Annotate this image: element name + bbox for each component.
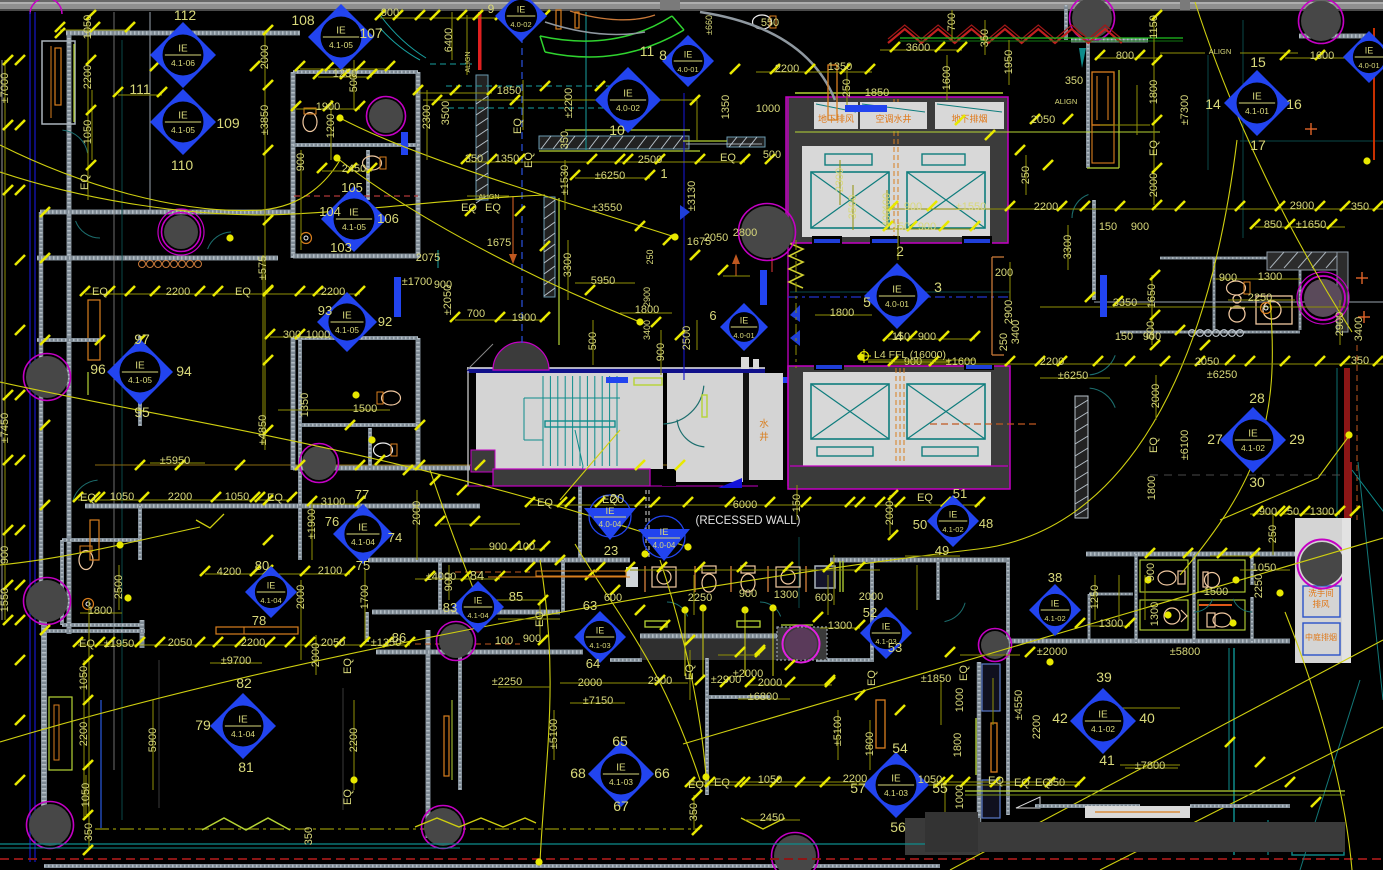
svg-text:96: 96 bbox=[90, 361, 106, 377]
svg-text:2200: 2200 bbox=[843, 773, 867, 785]
svg-text:77: 77 bbox=[355, 487, 369, 502]
svg-text:2800: 2800 bbox=[733, 227, 757, 239]
svg-text:4200: 4200 bbox=[217, 566, 241, 578]
svg-text:2000: 2000 bbox=[310, 643, 322, 667]
svg-text:IE: IE bbox=[342, 311, 352, 322]
svg-text:2050: 2050 bbox=[168, 637, 192, 649]
svg-text:56: 56 bbox=[890, 819, 906, 835]
svg-text:±7150: ±7150 bbox=[583, 695, 614, 707]
svg-text:4.1-04: 4.1-04 bbox=[231, 729, 255, 739]
svg-text:350: 350 bbox=[83, 823, 95, 841]
svg-text:1600: 1600 bbox=[1310, 50, 1334, 62]
svg-text:2050: 2050 bbox=[1031, 114, 1055, 126]
svg-text:洗手间: 洗手间 bbox=[1308, 588, 1334, 598]
svg-text:EQ: EQ bbox=[1014, 777, 1030, 789]
svg-text:2250: 2250 bbox=[1253, 574, 1265, 598]
svg-text:1350: 1350 bbox=[828, 61, 852, 73]
svg-text:1050: 1050 bbox=[82, 120, 94, 144]
svg-text:350: 350 bbox=[1047, 777, 1065, 789]
svg-text:900: 900 bbox=[489, 541, 507, 553]
svg-text:1300: 1300 bbox=[1258, 271, 1282, 283]
svg-text:94: 94 bbox=[176, 363, 192, 379]
svg-text:38: 38 bbox=[1048, 570, 1062, 585]
svg-text:15: 15 bbox=[1250, 54, 1266, 70]
svg-text:EQ: EQ bbox=[267, 492, 283, 504]
svg-text:4.1-02: 4.1-02 bbox=[942, 525, 963, 534]
svg-text:(RECESSED WALL): (RECESSED WALL) bbox=[695, 515, 800, 527]
svg-text:250: 250 bbox=[841, 79, 853, 97]
svg-text:1050: 1050 bbox=[82, 15, 94, 39]
svg-text:80: 80 bbox=[255, 558, 269, 573]
svg-text:4.1-03: 4.1-03 bbox=[884, 788, 908, 798]
svg-text:5950: 5950 bbox=[591, 275, 615, 287]
svg-text:39: 39 bbox=[1096, 669, 1112, 685]
svg-text:500: 500 bbox=[763, 149, 781, 161]
svg-text:64: 64 bbox=[586, 656, 600, 671]
svg-text:350: 350 bbox=[1065, 75, 1083, 87]
svg-text:2450: 2450 bbox=[342, 163, 366, 175]
svg-text:95: 95 bbox=[134, 404, 150, 420]
svg-text:1900: 1900 bbox=[316, 101, 340, 113]
svg-text:IE: IE bbox=[474, 596, 483, 606]
svg-text:EQ: EQ bbox=[534, 611, 546, 627]
svg-text:2900: 2900 bbox=[1334, 312, 1346, 336]
svg-text:EQ: EQ bbox=[485, 202, 501, 214]
svg-text:20: 20 bbox=[610, 491, 624, 506]
svg-text:550: 550 bbox=[761, 17, 779, 29]
svg-text:6400: 6400 bbox=[443, 28, 455, 52]
svg-text:2100: 2100 bbox=[318, 565, 342, 577]
svg-text:ALIGN: ALIGN bbox=[1055, 97, 1078, 106]
svg-text:EQ: EQ bbox=[79, 174, 91, 190]
svg-text:2050: 2050 bbox=[321, 637, 345, 649]
svg-text:1500: 1500 bbox=[353, 403, 377, 415]
svg-text:IE: IE bbox=[606, 506, 615, 517]
svg-text:1300: 1300 bbox=[774, 589, 798, 601]
svg-text:11: 11 bbox=[640, 43, 655, 59]
svg-text:±2050: ±2050 bbox=[442, 285, 454, 316]
svg-text:2200: 2200 bbox=[1034, 201, 1058, 213]
svg-text:850: 850 bbox=[1264, 219, 1282, 231]
svg-text:29: 29 bbox=[1289, 431, 1305, 447]
svg-text:16: 16 bbox=[1286, 96, 1302, 112]
svg-text:9: 9 bbox=[488, 2, 495, 16]
svg-text:900: 900 bbox=[523, 633, 541, 645]
svg-text:900: 900 bbox=[1259, 506, 1277, 518]
svg-text:IE: IE bbox=[1098, 710, 1108, 721]
svg-text:350: 350 bbox=[303, 827, 315, 845]
svg-text:50: 50 bbox=[1287, 506, 1299, 518]
svg-text:IE: IE bbox=[684, 50, 693, 60]
svg-text:700: 700 bbox=[946, 13, 958, 31]
svg-text:900: 900 bbox=[918, 221, 936, 233]
svg-text:IE: IE bbox=[517, 5, 526, 15]
svg-text:68: 68 bbox=[570, 765, 586, 781]
svg-text:2500: 2500 bbox=[681, 326, 693, 350]
svg-text:IE: IE bbox=[178, 44, 188, 55]
svg-text:250: 250 bbox=[998, 333, 1010, 351]
svg-text:IE: IE bbox=[267, 581, 276, 591]
svg-text:1150: 1150 bbox=[1148, 15, 1160, 39]
svg-text:排风: 排风 bbox=[1312, 599, 1330, 609]
svg-text:5900: 5900 bbox=[147, 728, 159, 752]
svg-text:600: 600 bbox=[815, 592, 833, 604]
svg-text:8: 8 bbox=[659, 47, 667, 63]
svg-text:93: 93 bbox=[318, 303, 332, 318]
svg-text:地下排风: 地下排风 bbox=[818, 113, 854, 124]
svg-text:±2200: ±2200 bbox=[563, 88, 575, 119]
svg-text:1000: 1000 bbox=[954, 785, 966, 809]
svg-text:74: 74 bbox=[388, 530, 402, 545]
svg-text:50: 50 bbox=[913, 517, 927, 532]
svg-text:4.1-04: 4.1-04 bbox=[260, 596, 281, 605]
svg-text:IE: IE bbox=[740, 316, 749, 326]
svg-text:±5800: ±5800 bbox=[1170, 646, 1201, 658]
svg-text:109: 109 bbox=[216, 115, 240, 131]
svg-text:中庭排烟: 中庭排烟 bbox=[1305, 632, 1337, 642]
svg-text:1800: 1800 bbox=[1146, 476, 1158, 500]
svg-text:27: 27 bbox=[1207, 431, 1223, 447]
svg-text:1300: 1300 bbox=[828, 620, 852, 632]
svg-text:EQ: EQ bbox=[80, 492, 96, 504]
svg-text:IE: IE bbox=[1051, 599, 1060, 609]
svg-text:EQ: EQ bbox=[988, 775, 1004, 787]
svg-text:5: 5 bbox=[863, 294, 871, 310]
svg-text:4.0-02: 4.0-02 bbox=[616, 103, 640, 113]
svg-text:900: 900 bbox=[655, 343, 667, 361]
svg-text:4.0-01: 4.0-01 bbox=[885, 299, 909, 309]
svg-text:2000: 2000 bbox=[295, 585, 307, 609]
svg-text:4.0-01: 4.0-01 bbox=[1358, 61, 1379, 70]
svg-text:10: 10 bbox=[609, 122, 625, 138]
svg-text:105: 105 bbox=[341, 180, 363, 195]
svg-text:2000: 2000 bbox=[1148, 173, 1160, 197]
svg-text:1050: 1050 bbox=[225, 491, 249, 503]
svg-text:500: 500 bbox=[348, 74, 360, 92]
svg-text:2000: 2000 bbox=[1150, 384, 1162, 408]
svg-text:1000: 1000 bbox=[306, 329, 330, 341]
svg-text:ALIGN: ALIGN bbox=[1209, 47, 1232, 56]
svg-text:±1530: ±1530 bbox=[559, 165, 571, 196]
svg-text:92: 92 bbox=[378, 314, 392, 329]
svg-text:4: 4 bbox=[895, 328, 903, 344]
svg-text:1650: 1650 bbox=[1146, 284, 1158, 308]
svg-text:76: 76 bbox=[325, 514, 339, 529]
svg-text:100: 100 bbox=[517, 541, 535, 553]
svg-text:2200: 2200 bbox=[1031, 715, 1043, 739]
svg-text:EQ: EQ bbox=[714, 777, 730, 789]
svg-text:106: 106 bbox=[377, 211, 399, 226]
svg-text:±7300: ±7300 bbox=[1179, 95, 1191, 126]
svg-text:17: 17 bbox=[1250, 137, 1266, 153]
svg-text:400: 400 bbox=[881, 193, 893, 211]
svg-text:111: 111 bbox=[129, 81, 150, 97]
svg-text:2000: 2000 bbox=[259, 45, 271, 69]
svg-text:4.1-05: 4.1-05 bbox=[329, 40, 353, 50]
svg-text:1850: 1850 bbox=[497, 85, 521, 97]
svg-text:23: 23 bbox=[604, 543, 618, 558]
svg-text:±4850: ±4850 bbox=[257, 415, 269, 446]
svg-text:110: 110 bbox=[171, 157, 194, 173]
svg-text:L4 FFL (16000): L4 FFL (16000) bbox=[874, 349, 946, 361]
svg-text:150: 150 bbox=[791, 494, 803, 512]
svg-text:900: 900 bbox=[1219, 272, 1237, 284]
svg-text:14: 14 bbox=[1205, 96, 1221, 112]
svg-text:水: 水 bbox=[759, 418, 769, 430]
svg-text:IE: IE bbox=[336, 26, 346, 37]
svg-text:±5100: ±5100 bbox=[832, 716, 844, 747]
svg-text:IE: IE bbox=[358, 523, 368, 534]
svg-text:±2000: ±2000 bbox=[733, 668, 764, 680]
svg-text:2200: 2200 bbox=[348, 728, 360, 752]
svg-text:42: 42 bbox=[1052, 710, 1068, 726]
svg-text:2200: 2200 bbox=[775, 63, 799, 75]
svg-text:900: 900 bbox=[1145, 563, 1157, 581]
svg-text:6000: 6000 bbox=[733, 499, 757, 511]
svg-text:82: 82 bbox=[236, 675, 252, 691]
svg-text:6: 6 bbox=[709, 308, 716, 323]
svg-text:107: 107 bbox=[359, 25, 383, 41]
svg-text:IE: IE bbox=[178, 111, 188, 122]
svg-text:2900: 2900 bbox=[648, 675, 672, 687]
svg-text:1: 1 bbox=[660, 166, 667, 181]
svg-text:2000: 2000 bbox=[411, 501, 423, 525]
svg-text:IE: IE bbox=[1252, 92, 1262, 103]
svg-text:250: 250 bbox=[1020, 166, 1032, 184]
svg-text:±6800: ±6800 bbox=[748, 691, 779, 703]
svg-text:EQ: EQ bbox=[461, 202, 477, 214]
svg-text:2050: 2050 bbox=[1195, 356, 1219, 368]
svg-text:2: 2 bbox=[896, 243, 904, 259]
svg-text:2000: 2000 bbox=[859, 591, 883, 603]
svg-text:1700: 1700 bbox=[359, 585, 371, 609]
svg-text:500: 500 bbox=[587, 332, 599, 350]
svg-text:79: 79 bbox=[195, 717, 211, 733]
svg-text:±5950: ±5950 bbox=[160, 455, 191, 467]
svg-text:4.1-02: 4.1-02 bbox=[1044, 614, 1065, 623]
svg-text:3400: 3400 bbox=[642, 320, 652, 340]
svg-text:112: 112 bbox=[174, 7, 197, 23]
svg-text:2200: 2200 bbox=[82, 65, 94, 89]
svg-text:ALIGN: ALIGN bbox=[465, 51, 472, 72]
svg-text:IE: IE bbox=[882, 622, 891, 632]
svg-text:65: 65 bbox=[612, 733, 628, 749]
svg-text:±6250: ±6250 bbox=[1058, 370, 1089, 382]
svg-text:150: 150 bbox=[1115, 331, 1133, 343]
svg-text:900: 900 bbox=[443, 573, 455, 591]
svg-text:IE: IE bbox=[623, 89, 633, 100]
svg-text:1050: 1050 bbox=[758, 774, 782, 786]
svg-text:4.1-06: 4.1-06 bbox=[171, 58, 195, 68]
svg-text:±2000: ±2000 bbox=[1037, 646, 1068, 658]
svg-text:2000: 2000 bbox=[884, 501, 896, 525]
svg-text:2450: 2450 bbox=[760, 812, 784, 824]
svg-text:41: 41 bbox=[1099, 752, 1115, 768]
svg-text:±1700: ±1700 bbox=[402, 276, 433, 288]
svg-text:4.1-04: 4.1-04 bbox=[351, 537, 375, 547]
svg-text:IE: IE bbox=[1365, 46, 1374, 56]
svg-text:2900: 2900 bbox=[1290, 200, 1314, 212]
svg-text:500: 500 bbox=[1145, 321, 1157, 339]
svg-text:2250: 2250 bbox=[1248, 292, 1272, 304]
svg-text:IE: IE bbox=[135, 361, 145, 372]
svg-text:EQ: EQ bbox=[720, 152, 736, 164]
svg-text:IE: IE bbox=[349, 208, 359, 219]
svg-text:±1850: ±1850 bbox=[921, 673, 952, 685]
svg-text:EQ: EQ bbox=[235, 286, 251, 298]
svg-text:IE: IE bbox=[596, 626, 605, 636]
svg-text:1300: 1300 bbox=[1099, 618, 1123, 630]
svg-text:±1650: ±1650 bbox=[1296, 219, 1327, 231]
svg-text:53: 53 bbox=[888, 640, 902, 655]
svg-text:4.1-05: 4.1-05 bbox=[342, 222, 366, 232]
svg-text:40: 40 bbox=[1139, 710, 1155, 726]
svg-text:IE: IE bbox=[660, 527, 669, 538]
svg-text:84: 84 bbox=[470, 568, 484, 583]
svg-text:2250: 2250 bbox=[688, 592, 712, 604]
svg-text:48: 48 bbox=[979, 516, 993, 531]
svg-text:2200: 2200 bbox=[78, 722, 90, 746]
svg-text:EQ: EQ bbox=[523, 152, 535, 168]
svg-text:52: 52 bbox=[863, 605, 877, 620]
svg-text:75: 75 bbox=[356, 558, 370, 573]
svg-text:1350: 1350 bbox=[299, 393, 311, 417]
svg-text:EQ: EQ bbox=[917, 492, 933, 504]
svg-text:EQ: EQ bbox=[79, 638, 95, 650]
svg-text:4.0-01: 4.0-01 bbox=[677, 65, 698, 74]
svg-text:2500: 2500 bbox=[638, 154, 662, 166]
svg-text:2300: 2300 bbox=[834, 168, 846, 192]
svg-text:200: 200 bbox=[995, 267, 1013, 279]
svg-text:3350: 3350 bbox=[1113, 297, 1137, 309]
svg-text:±6100: ±6100 bbox=[1179, 430, 1191, 461]
svg-text:66: 66 bbox=[654, 765, 670, 781]
svg-text:4.1-03: 4.1-03 bbox=[589, 641, 610, 650]
svg-text:1850: 1850 bbox=[865, 87, 889, 99]
svg-text:3400: 3400 bbox=[1010, 320, 1022, 344]
svg-text:1800: 1800 bbox=[952, 733, 964, 757]
svg-text:85: 85 bbox=[509, 589, 523, 604]
svg-text:900: 900 bbox=[295, 153, 307, 171]
svg-text:±575: ±575 bbox=[257, 256, 269, 280]
svg-text:3300: 3300 bbox=[1062, 235, 1074, 259]
svg-text:250: 250 bbox=[1267, 525, 1279, 543]
svg-text:900: 900 bbox=[381, 7, 399, 19]
svg-text:1350: 1350 bbox=[720, 95, 732, 119]
svg-text:350: 350 bbox=[979, 29, 991, 47]
svg-text:63: 63 bbox=[583, 598, 597, 613]
svg-text:3300: 3300 bbox=[562, 253, 574, 277]
svg-text:±4550: ±4550 bbox=[1013, 690, 1025, 721]
svg-text:2075: 2075 bbox=[416, 252, 440, 264]
svg-text:103: 103 bbox=[330, 240, 352, 255]
svg-text:3400: 3400 bbox=[1353, 317, 1365, 341]
svg-text:IE: IE bbox=[616, 763, 626, 774]
svg-text:4.1-05: 4.1-05 bbox=[335, 325, 359, 335]
svg-text:104: 104 bbox=[319, 204, 341, 219]
svg-text:900: 900 bbox=[904, 201, 922, 213]
svg-text:4.1-03: 4.1-03 bbox=[609, 777, 633, 787]
svg-text:350: 350 bbox=[465, 153, 483, 165]
svg-text:±1950: ±1950 bbox=[104, 638, 135, 650]
svg-text:1800: 1800 bbox=[830, 307, 854, 319]
svg-text:±3130: ±3130 bbox=[686, 181, 698, 212]
svg-text:78: 78 bbox=[252, 613, 266, 628]
svg-text:1050: 1050 bbox=[1252, 562, 1276, 574]
svg-text:IE: IE bbox=[1248, 429, 1258, 440]
svg-text:3: 3 bbox=[934, 279, 942, 295]
svg-text:EQ: EQ bbox=[866, 670, 878, 686]
svg-text:2300: 2300 bbox=[421, 105, 433, 129]
svg-text:1600: 1600 bbox=[941, 66, 953, 90]
svg-text:1800: 1800 bbox=[88, 605, 112, 617]
svg-text:4.0-02: 4.0-02 bbox=[510, 20, 531, 29]
svg-text:600: 600 bbox=[604, 592, 622, 604]
svg-text:±660: ±660 bbox=[704, 15, 714, 35]
svg-text:EQ: EQ bbox=[537, 497, 553, 509]
svg-text:±7450: ±7450 bbox=[0, 413, 11, 444]
svg-text:28: 28 bbox=[1249, 390, 1265, 406]
svg-text:EQ: EQ bbox=[1148, 140, 1160, 156]
svg-text:井: 井 bbox=[759, 431, 769, 443]
svg-text:150: 150 bbox=[892, 221, 910, 233]
svg-text:67: 67 bbox=[613, 798, 629, 814]
svg-text:81: 81 bbox=[238, 759, 254, 775]
svg-text:900: 900 bbox=[739, 588, 757, 600]
svg-text:3500: 3500 bbox=[847, 195, 859, 219]
svg-text:EQ: EQ bbox=[92, 286, 108, 298]
svg-text:800: 800 bbox=[1116, 50, 1134, 62]
svg-text:83: 83 bbox=[443, 600, 457, 615]
svg-text:EQ: EQ bbox=[688, 779, 704, 791]
svg-text:108: 108 bbox=[291, 12, 315, 28]
svg-text:350: 350 bbox=[1351, 355, 1369, 367]
svg-text:350: 350 bbox=[559, 131, 571, 149]
svg-text:2200: 2200 bbox=[168, 491, 192, 503]
svg-text:EQ: EQ bbox=[684, 664, 696, 680]
svg-text:IE: IE bbox=[238, 715, 248, 726]
svg-text:1050: 1050 bbox=[918, 774, 942, 786]
svg-text:1900: 1900 bbox=[512, 312, 536, 324]
svg-text:4.1-05: 4.1-05 bbox=[128, 375, 152, 385]
svg-text:54: 54 bbox=[892, 740, 908, 756]
svg-text:2000: 2000 bbox=[578, 677, 602, 689]
svg-text:900: 900 bbox=[918, 331, 936, 343]
svg-text:1800: 1800 bbox=[1148, 80, 1160, 104]
svg-text:±3550: ±3550 bbox=[592, 202, 623, 214]
svg-text:IE: IE bbox=[949, 510, 958, 520]
svg-text:2200: 2200 bbox=[321, 286, 345, 298]
svg-text:1050: 1050 bbox=[80, 783, 92, 807]
svg-text:4.1-01: 4.1-01 bbox=[1245, 106, 1269, 116]
svg-text:900: 900 bbox=[0, 546, 11, 564]
svg-text:4.0-04: 4.0-04 bbox=[653, 541, 676, 550]
svg-text:±1600: ±1600 bbox=[946, 356, 977, 368]
svg-text:97: 97 bbox=[134, 331, 150, 347]
svg-text:±1900: ±1900 bbox=[306, 509, 318, 540]
svg-text:1250: 1250 bbox=[1089, 585, 1101, 609]
svg-text:100: 100 bbox=[495, 635, 513, 647]
svg-text:1300: 1300 bbox=[1149, 602, 1161, 626]
svg-text:2200: 2200 bbox=[1040, 356, 1064, 368]
svg-text:1350: 1350 bbox=[495, 153, 519, 165]
svg-text:IE: IE bbox=[891, 774, 901, 785]
svg-text:±9700: ±9700 bbox=[221, 655, 252, 667]
svg-text:4.1-04: 4.1-04 bbox=[467, 611, 488, 620]
svg-text:30: 30 bbox=[1249, 474, 1265, 490]
svg-text:2050: 2050 bbox=[704, 232, 728, 244]
svg-text:空调水井: 空调水井 bbox=[875, 113, 911, 124]
